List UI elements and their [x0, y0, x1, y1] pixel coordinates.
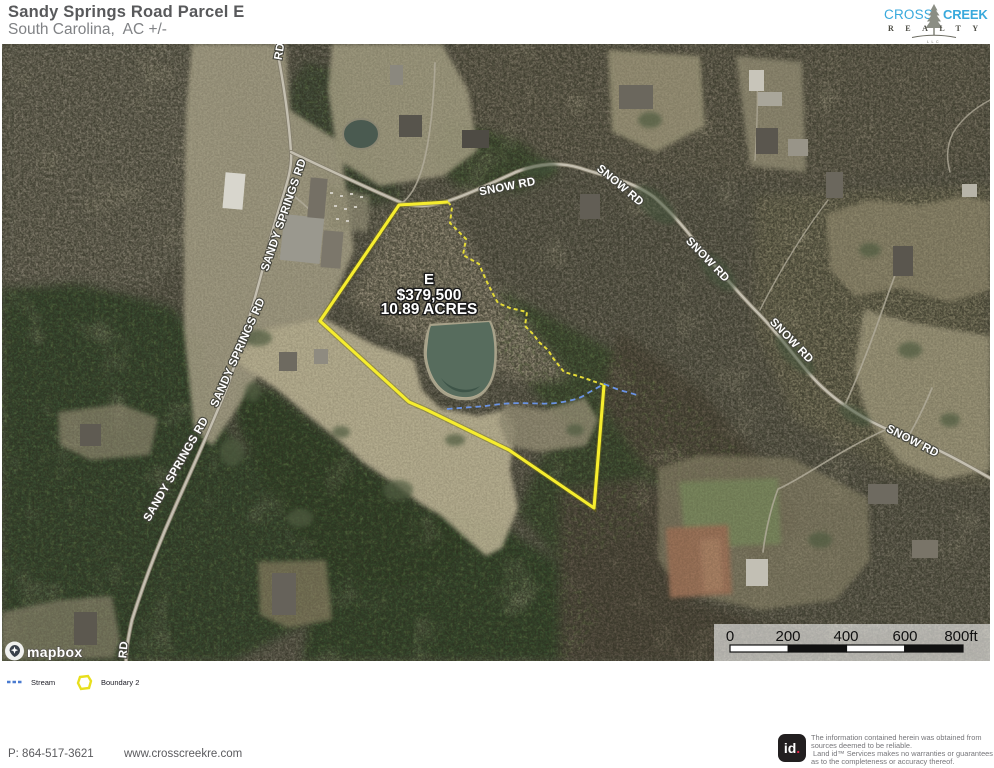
svg-text:CREEK: CREEK — [943, 7, 988, 22]
svg-text:800ft: 800ft — [944, 628, 978, 645]
svg-text:mapbox: mapbox — [27, 644, 82, 660]
svg-text:200: 200 — [775, 628, 800, 645]
svg-text:CROSS: CROSS — [884, 7, 933, 22]
svg-text:E: E — [424, 271, 434, 288]
svg-text:400: 400 — [833, 628, 858, 645]
svg-text:RD: RD — [117, 641, 130, 659]
svg-text:0: 0 — [726, 628, 734, 645]
svg-text:600: 600 — [892, 628, 917, 645]
svg-text:REALTY: REALTY — [888, 24, 988, 33]
svg-text:10.89 ACRES: 10.89 ACRES — [381, 301, 478, 318]
